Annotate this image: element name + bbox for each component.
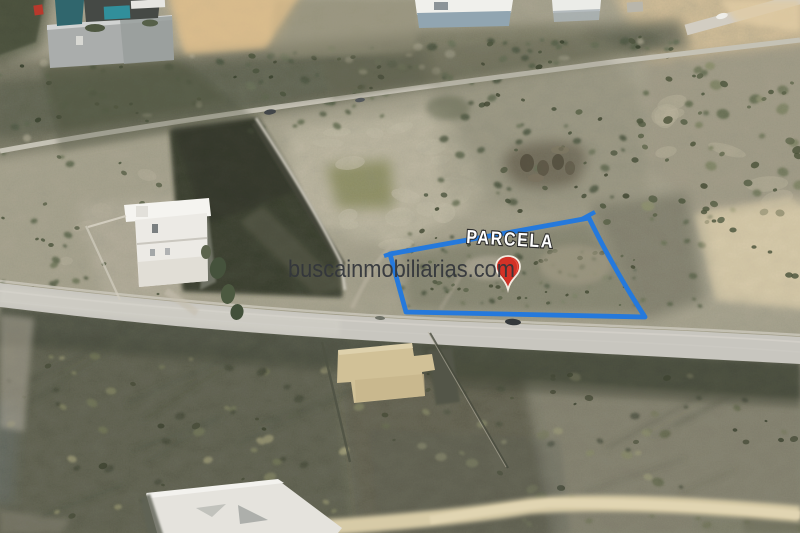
svg-text:buscainmobiliarias.com: buscainmobiliarias.com (288, 256, 515, 283)
